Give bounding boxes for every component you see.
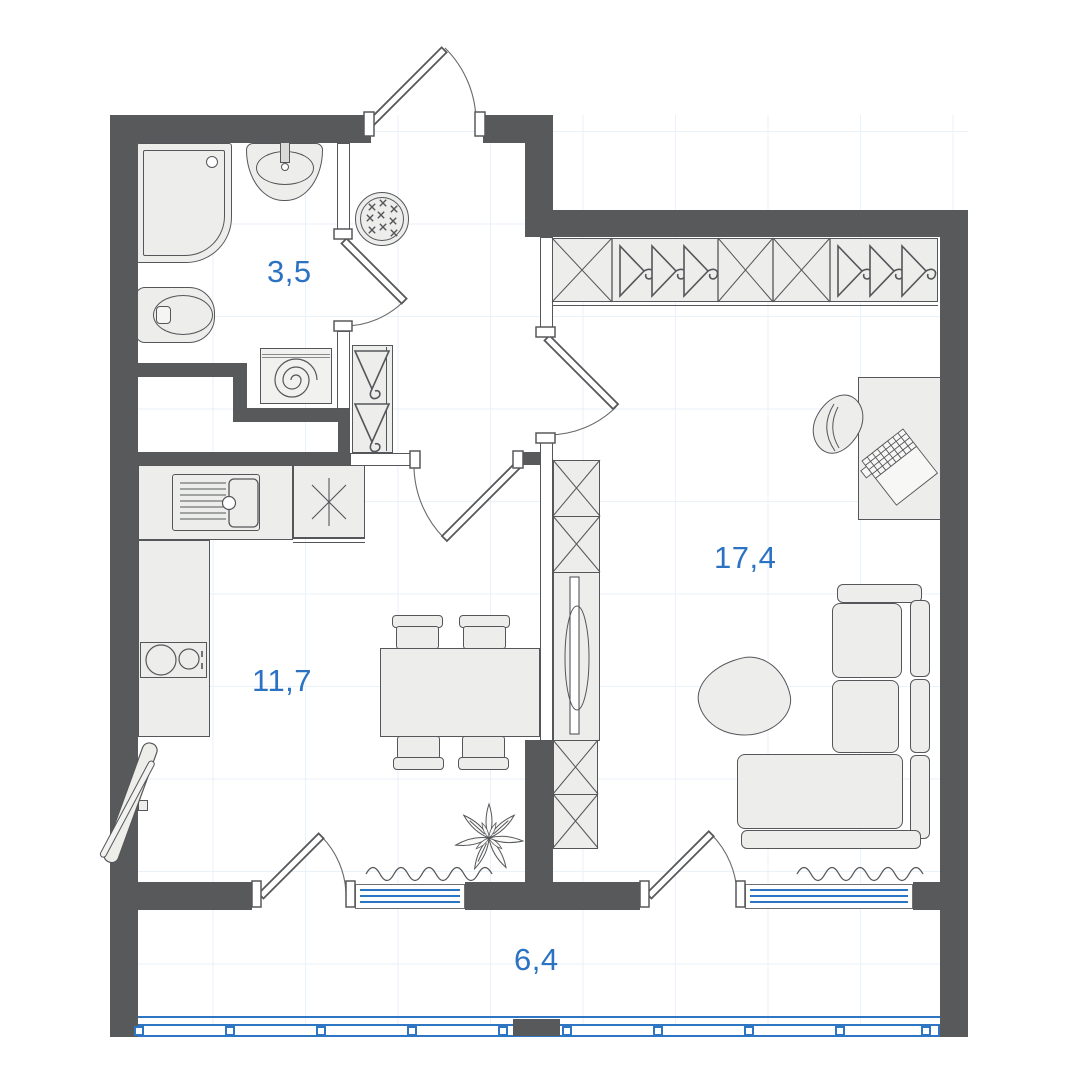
- kitchen-counter-left: [138, 540, 210, 737]
- wall-segment: [483, 115, 553, 143]
- wall-segment: [247, 408, 350, 422]
- balcony-rail-line: [138, 1016, 940, 1018]
- partition-hall-upper: [540, 237, 553, 329]
- wall-segment: [233, 363, 247, 422]
- cabinet-box: [553, 740, 598, 795]
- shower-drain-icon: [206, 156, 218, 168]
- wall-segment: [465, 882, 640, 910]
- faucet-icon: [280, 142, 290, 163]
- faucet-dot: [281, 163, 289, 171]
- entry-mat-inner: [360, 197, 404, 241]
- chair-back: [393, 757, 444, 770]
- chair-back: [458, 757, 509, 770]
- wall-segment: [525, 210, 968, 237]
- glazing-pier: [513, 1019, 560, 1036]
- wall-segment: [138, 363, 247, 377]
- dining-table-icon: [380, 648, 540, 737]
- window-icon: [745, 884, 913, 909]
- cabinet-box: [553, 460, 600, 517]
- chair-seat: [462, 736, 505, 759]
- kitchen-sink-icon: [172, 474, 260, 531]
- wall-bracket: [138, 800, 148, 811]
- cabinet-box: [553, 794, 598, 849]
- wall-segment: [138, 882, 252, 910]
- wall-segment: [138, 452, 348, 465]
- wall-segment: [110, 115, 371, 143]
- tv-stand: [553, 572, 600, 741]
- sofa-back-cushion: [910, 600, 930, 677]
- partition-bathroom-lower: [337, 331, 350, 409]
- chair-seat: [396, 626, 439, 649]
- washing-machine-lid: [262, 354, 330, 358]
- partition-hall-kitchen: [350, 453, 412, 466]
- sofa-seat: [832, 603, 902, 678]
- chair-seat: [463, 626, 506, 649]
- utility-asterisk-box: [293, 465, 365, 538]
- wall-segment: [913, 882, 940, 910]
- toilet-flush: [156, 306, 171, 324]
- room-area-label-balcony: 6,4: [514, 944, 559, 975]
- utility-box-edge: [293, 538, 365, 543]
- room-area-label-living: 17,4: [714, 542, 776, 573]
- wall-segment: [110, 115, 138, 1037]
- cooktop-icon: [140, 642, 207, 678]
- room-area-label-kitchen: 11,7: [252, 665, 312, 696]
- sofa-back-cushion: [910, 755, 930, 839]
- cabinet-box: [553, 516, 600, 573]
- wardrobe: [552, 238, 938, 302]
- wall-segment: [525, 740, 553, 882]
- sofa-top-arm: [837, 584, 922, 603]
- wardrobe-front-edge: [552, 302, 938, 306]
- partition-bathroom-upper: [337, 143, 350, 233]
- desk-icon: [858, 377, 942, 520]
- sofa-seat: [832, 680, 899, 753]
- room-area-label-bathroom: 3,5: [267, 256, 312, 287]
- window-icon: [355, 884, 465, 909]
- floor-plan: 3,5 11,7 17,4 6,4: [0, 0, 1080, 1080]
- hall-rack-edge: [386, 347, 388, 451]
- sofa-bottom-arm: [741, 830, 921, 849]
- sofa-seat: [737, 754, 903, 829]
- chair-seat: [397, 736, 440, 759]
- wall-segment: [940, 237, 968, 1037]
- sofa-back-cushion: [910, 679, 930, 753]
- partition-hall-lower: [540, 441, 553, 741]
